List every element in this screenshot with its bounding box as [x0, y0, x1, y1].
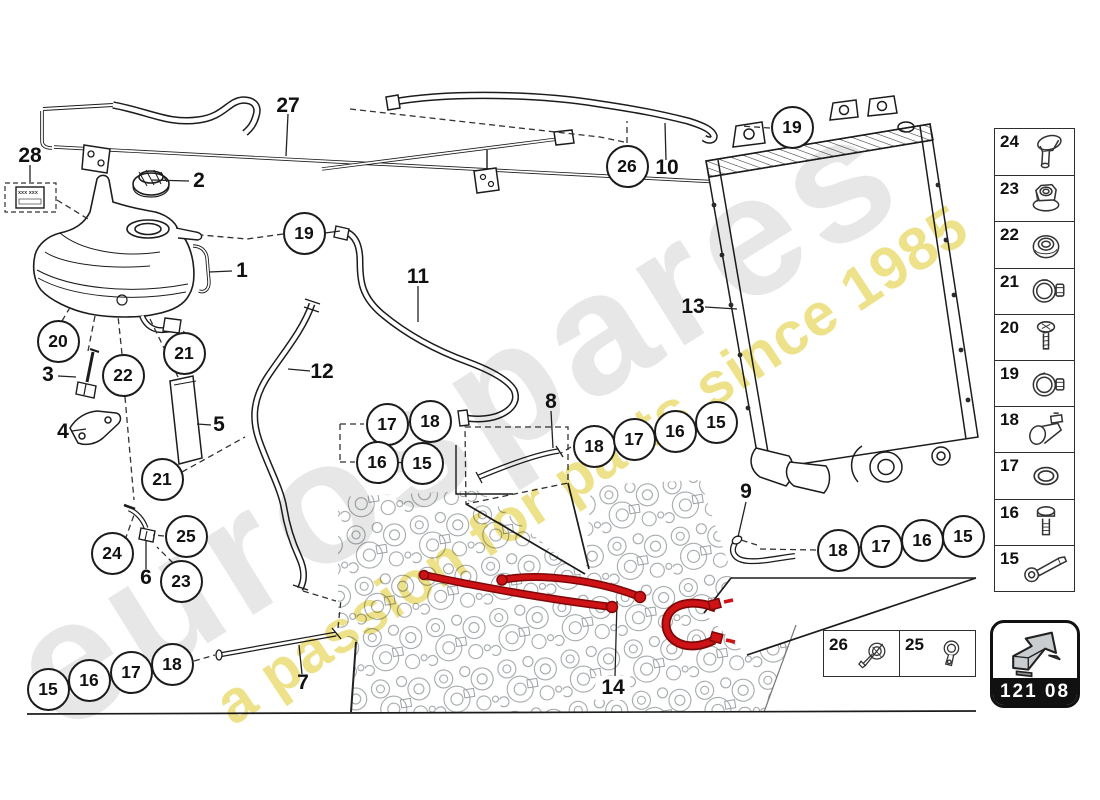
legend-item-19[interactable]: 19: [995, 360, 1074, 406]
part-label-6[interactable]: 6: [140, 566, 152, 590]
hose-clamp-icon: [1019, 363, 1073, 405]
rivet-screw-icon: [1019, 131, 1073, 173]
legend-item-15[interactable]: 15: [995, 545, 1074, 591]
callout-17[interactable]: 17: [860, 525, 903, 568]
part-label-28[interactable]: 28: [18, 144, 41, 168]
callout-19[interactable]: 19: [771, 106, 814, 149]
callout-20[interactable]: 20: [37, 320, 80, 363]
legend-number: 26: [829, 635, 848, 655]
callout-23[interactable]: 23: [160, 560, 203, 603]
legend-item-16[interactable]: 16: [995, 499, 1074, 545]
callout-17[interactable]: 17: [366, 403, 409, 446]
callout-18[interactable]: 18: [573, 425, 616, 468]
callout-15[interactable]: 15: [695, 401, 738, 444]
part-label-27[interactable]: 27: [276, 94, 299, 118]
screw-icon: [1019, 316, 1073, 358]
grommet-icon: [1019, 224, 1073, 266]
direction-arrow-icon: [993, 623, 1077, 680]
hose-clamp-icon: [1019, 270, 1073, 312]
callout-26[interactable]: 26: [606, 145, 649, 188]
callout-24[interactable]: 24: [91, 532, 134, 575]
flange-nut-icon: [1019, 178, 1073, 220]
part-label-5[interactable]: 5: [213, 413, 225, 437]
legend-number: 20: [1000, 318, 1019, 338]
band-clamp-icon: [927, 634, 973, 674]
legend-number: 22: [1000, 225, 1019, 245]
hose-fitting-icon: [1019, 547, 1073, 589]
callout-15[interactable]: 15: [27, 668, 70, 711]
callout-18[interactable]: 18: [409, 400, 452, 443]
callout-22[interactable]: 22: [102, 354, 145, 397]
clamp-legend-box: 26 25: [823, 630, 976, 677]
callout-21[interactable]: 21: [163, 332, 206, 375]
spring-clamp-icon: [851, 634, 897, 674]
callout-21[interactable]: 21: [141, 458, 184, 501]
legend-number: 21: [1000, 272, 1019, 292]
legend-item-24[interactable]: 24: [995, 129, 1074, 175]
pipe-clip-icon: [1019, 409, 1073, 451]
legend-number: 19: [1000, 364, 1019, 384]
part-label-3[interactable]: 3: [42, 363, 54, 387]
part-label-10[interactable]: 10: [655, 156, 678, 180]
legend-number: 25: [905, 635, 924, 655]
callout-19[interactable]: 19: [283, 212, 326, 255]
callout-17[interactable]: 17: [613, 418, 656, 461]
legend-number: 17: [1000, 456, 1019, 476]
part-label-14[interactable]: 14: [595, 676, 630, 700]
legend-item-23[interactable]: 23: [995, 175, 1074, 221]
legend-item-22[interactable]: 22: [995, 221, 1074, 267]
parts-diagram-page: xxx xxx: [0, 0, 1100, 800]
part-label-12[interactable]: 12: [310, 360, 333, 384]
legend-number: 18: [1000, 410, 1019, 430]
part-label-7[interactable]: 7: [297, 671, 309, 695]
part-label-9[interactable]: 9: [740, 480, 752, 504]
legend-number: 24: [1000, 132, 1019, 152]
callout-16[interactable]: 16: [654, 410, 697, 453]
legend-number: 23: [1000, 179, 1019, 199]
legend-item-21[interactable]: 21: [995, 268, 1074, 314]
legend-item-26[interactable]: 26: [824, 631, 899, 676]
section-code: 121 08: [993, 678, 1077, 705]
callout-16[interactable]: 16: [356, 441, 399, 484]
o-ring-icon: [1019, 455, 1073, 497]
callout-25[interactable]: 25: [165, 515, 208, 558]
callout-17[interactable]: 17: [110, 651, 153, 694]
callout-16[interactable]: 16: [68, 659, 111, 702]
part-label-13[interactable]: 13: [681, 295, 704, 319]
part-label-2[interactable]: 2: [193, 169, 205, 193]
part-label-8[interactable]: 8: [545, 390, 557, 414]
legend-item-25[interactable]: 25: [899, 631, 975, 676]
callout-18[interactable]: 18: [151, 643, 194, 686]
legend-item-17[interactable]: 17: [995, 452, 1074, 498]
parts-legend-sidebar: 24 23 22: [994, 128, 1075, 592]
bolt-icon: [1019, 501, 1073, 543]
callout-15[interactable]: 15: [401, 442, 444, 485]
legend-item-20[interactable]: 20: [995, 314, 1074, 360]
part-label-11[interactable]: 11: [407, 265, 429, 289]
legend-number: 15: [1000, 549, 1019, 569]
part-label-4[interactable]: 4: [57, 420, 69, 444]
callout-18[interactable]: 18: [817, 529, 860, 572]
callout-16[interactable]: 16: [901, 519, 944, 562]
section-code-badge[interactable]: 121 08: [990, 620, 1080, 708]
legend-number: 16: [1000, 503, 1019, 523]
part-label-1[interactable]: 1: [236, 259, 248, 283]
callout-15[interactable]: 15: [942, 515, 985, 558]
legend-item-18[interactable]: 18: [995, 406, 1074, 452]
